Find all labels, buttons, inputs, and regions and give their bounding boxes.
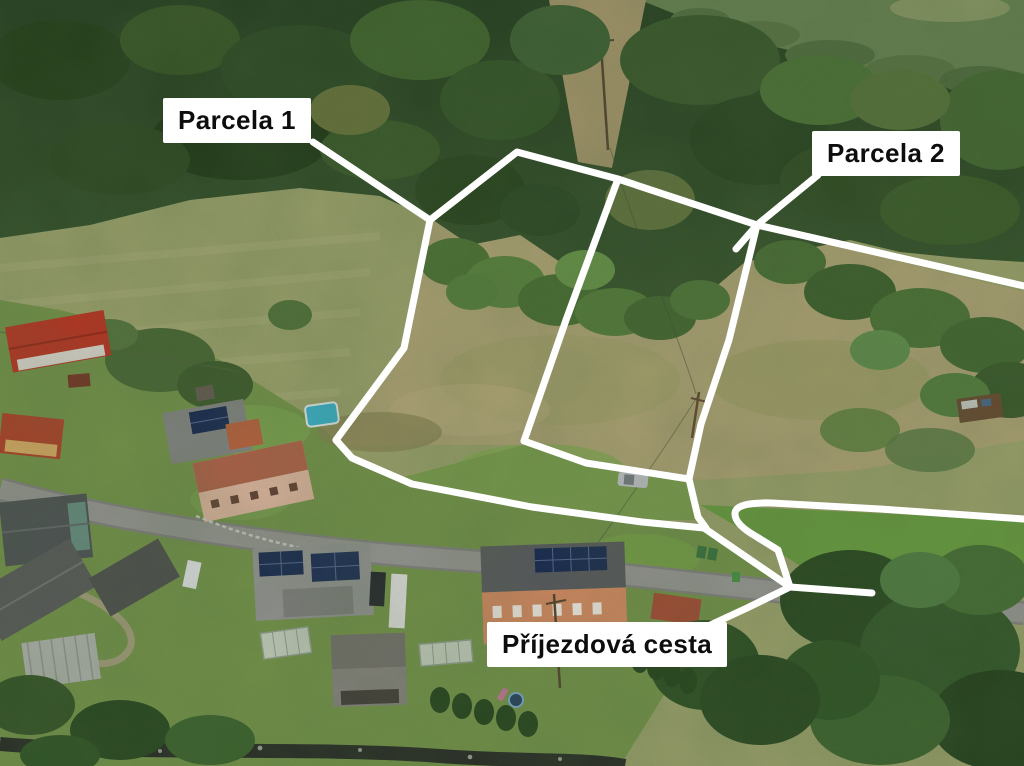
parcel-2-label-text: Parcela 2 bbox=[827, 138, 945, 168]
parcel-1-label-text: Parcela 1 bbox=[178, 105, 296, 135]
access-road-label: Příjezdová cesta bbox=[487, 622, 727, 667]
parcel-2-label: Parcela 2 bbox=[812, 131, 960, 176]
aerial-photo: Parcela 1 Parcela 2 Příjezdová cesta bbox=[0, 0, 1024, 766]
access-road-label-text: Příjezdová cesta bbox=[502, 629, 712, 659]
parcel-1-label: Parcela 1 bbox=[163, 98, 311, 143]
